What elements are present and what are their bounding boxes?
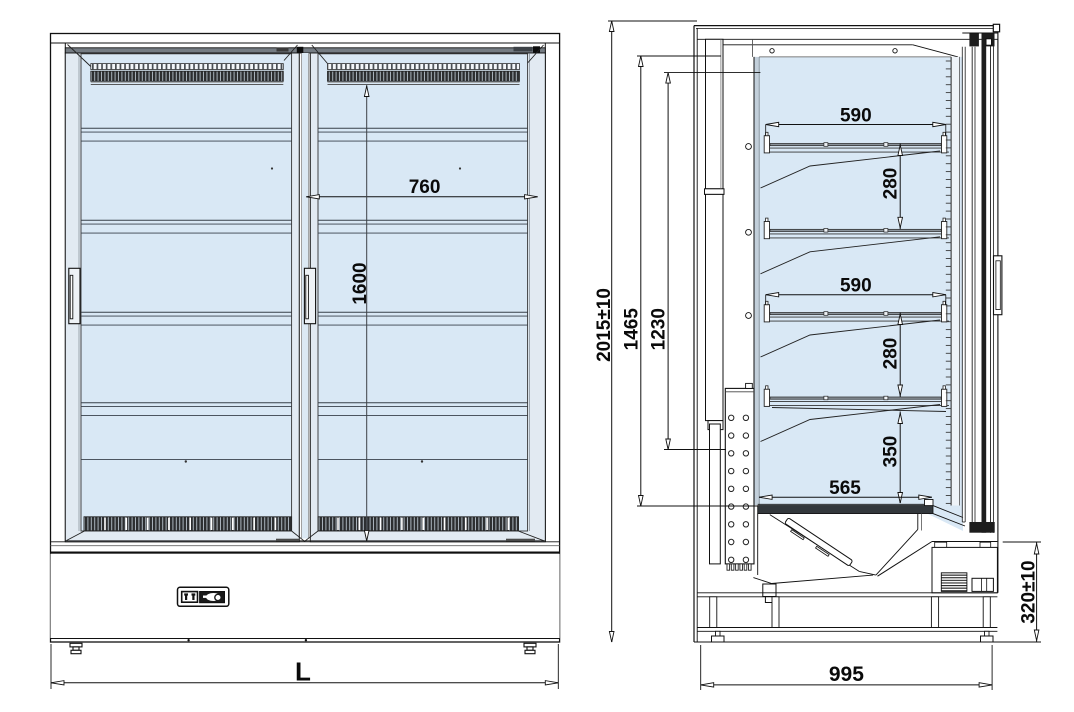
svg-text:590: 590 [840,275,872,296]
svg-text:280: 280 [880,168,901,200]
svg-text:760: 760 [409,177,441,198]
svg-text:995: 995 [829,663,864,686]
svg-text:350: 350 [880,436,901,468]
svg-text:320±10: 320±10 [1018,560,1039,623]
svg-text:1600: 1600 [350,262,371,304]
svg-text:590: 590 [840,105,872,126]
svg-text:280: 280 [880,338,901,370]
svg-text:1230: 1230 [649,308,670,350]
svg-text:2015±10: 2015±10 [594,288,615,362]
svg-text:1465: 1465 [622,308,643,351]
svg-text:L: L [295,657,311,687]
svg-text:565: 565 [829,478,861,499]
